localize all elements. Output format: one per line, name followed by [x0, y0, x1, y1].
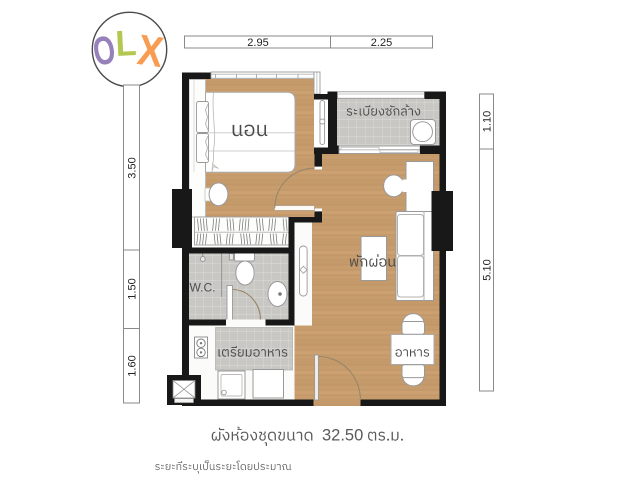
svg-text:2.25: 2.25: [371, 37, 392, 49]
svg-text:1.60: 1.60: [126, 355, 138, 376]
svg-text:2.95: 2.95: [247, 37, 268, 49]
svg-text:1.50: 1.50: [126, 278, 138, 299]
svg-text:L: L: [114, 23, 137, 64]
svg-text:5.10: 5.10: [481, 259, 493, 280]
svg-text:W.C.: W.C.: [190, 281, 216, 295]
svg-text:32.50: 32.50: [322, 427, 363, 445]
svg-text:3.50: 3.50: [126, 157, 138, 178]
svg-text:1.10: 1.10: [481, 111, 493, 132]
